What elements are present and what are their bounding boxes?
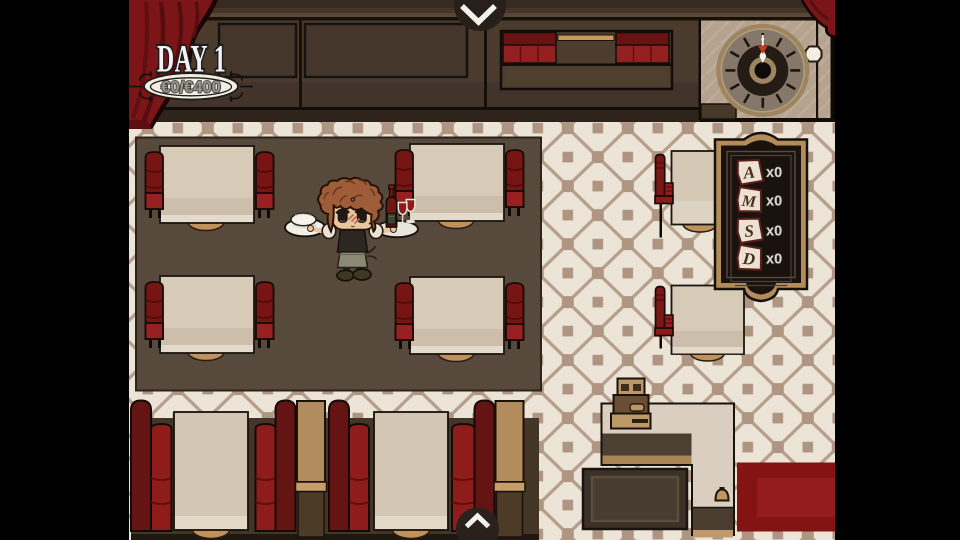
svg-text:€0/€400: €0/€400 [161, 79, 221, 97]
svg-text:M: M [740, 193, 757, 211]
svg-text:D: D [741, 249, 756, 269]
svg-text:x0: x0 [766, 165, 782, 181]
svg-text:x0: x0 [766, 224, 782, 240]
svg-text:S: S [744, 221, 755, 241]
svg-text:A: A [742, 163, 756, 183]
svg-text:x0: x0 [766, 252, 782, 268]
svg-text:x0: x0 [766, 194, 782, 210]
